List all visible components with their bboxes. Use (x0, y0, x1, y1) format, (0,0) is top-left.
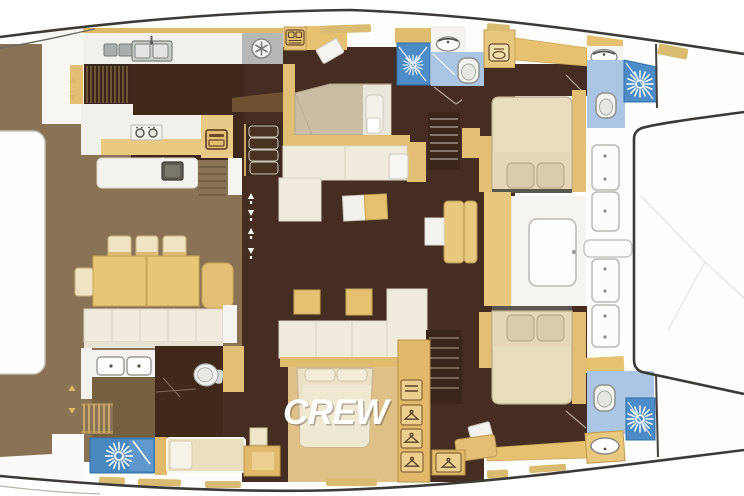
svg-text:CREW: CREW (283, 393, 391, 432)
